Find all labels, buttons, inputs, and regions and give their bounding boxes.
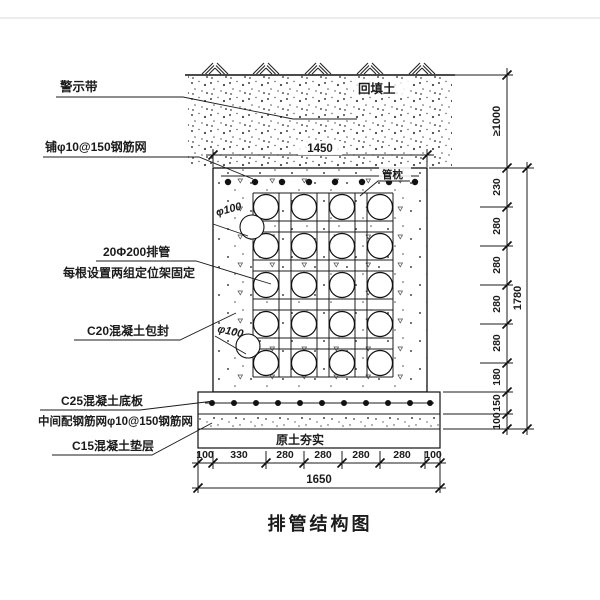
pipe-count-label: 20Φ200排管 xyxy=(103,244,170,259)
dim-right-segment: 100 xyxy=(491,412,503,430)
encasement-label: C20混凝土包封 xyxy=(87,323,169,338)
cushion-label: C15混凝土垫层 xyxy=(72,438,154,453)
warning-tape-label: 警示带 xyxy=(59,79,98,94)
dim-bottom-segment: 280 xyxy=(352,449,370,461)
dim-right-segment: 280 xyxy=(491,295,503,313)
dim-right-segment: 280 xyxy=(491,217,503,235)
drawing-title: 排管结构图 xyxy=(268,513,373,534)
backfill-soil-label: 回填土 xyxy=(358,81,396,96)
base-slab-label: C25混凝土底板 xyxy=(61,393,144,408)
dim-right-segment: 280 xyxy=(491,256,503,274)
pipe-pillow-label: 管枕 xyxy=(382,168,403,181)
dim-bottom-total: 1650 xyxy=(306,474,332,486)
compacted-soil-label: 原土夯实 xyxy=(276,432,324,447)
dim-bottom-segment: 280 xyxy=(393,449,411,461)
dim-bottom-segment: 280 xyxy=(314,449,332,461)
cushion-layer xyxy=(198,414,440,429)
foundation-layers: 原土夯实 xyxy=(198,392,440,448)
dim-bottom-segment: 100 xyxy=(424,449,442,461)
dim-right-segment: 180 xyxy=(491,368,503,386)
dim-bottom-segment: 330 xyxy=(230,449,248,461)
dim-right-segment: 280 xyxy=(491,334,503,352)
dim-cover-depth: ≥1000 xyxy=(491,106,503,137)
annotation-slab-mesh: 中间配钢筋网φ10@150钢筋网 xyxy=(38,414,193,428)
dim-bottom-segment: 280 xyxy=(276,449,294,461)
slab-mesh-label: 中间配钢筋网φ10@150钢筋网 xyxy=(38,414,193,428)
dim-bottom-segment: 100 xyxy=(196,449,214,461)
concrete-encasement-block xyxy=(213,168,427,392)
top-mesh-label: 铺φ10@150钢筋网 xyxy=(45,139,147,154)
pipe-fixing-label: 每根设置两组定位架固定 xyxy=(63,265,195,280)
dim-right-segment: 230 xyxy=(491,178,503,196)
dim-right-total: 1780 xyxy=(512,286,524,310)
dim-top-width-value: 1450 xyxy=(307,143,333,155)
drawing-canvas: 回填土 1450 管枕 xyxy=(0,0,600,600)
dim-right-segment: 150 xyxy=(491,394,503,412)
